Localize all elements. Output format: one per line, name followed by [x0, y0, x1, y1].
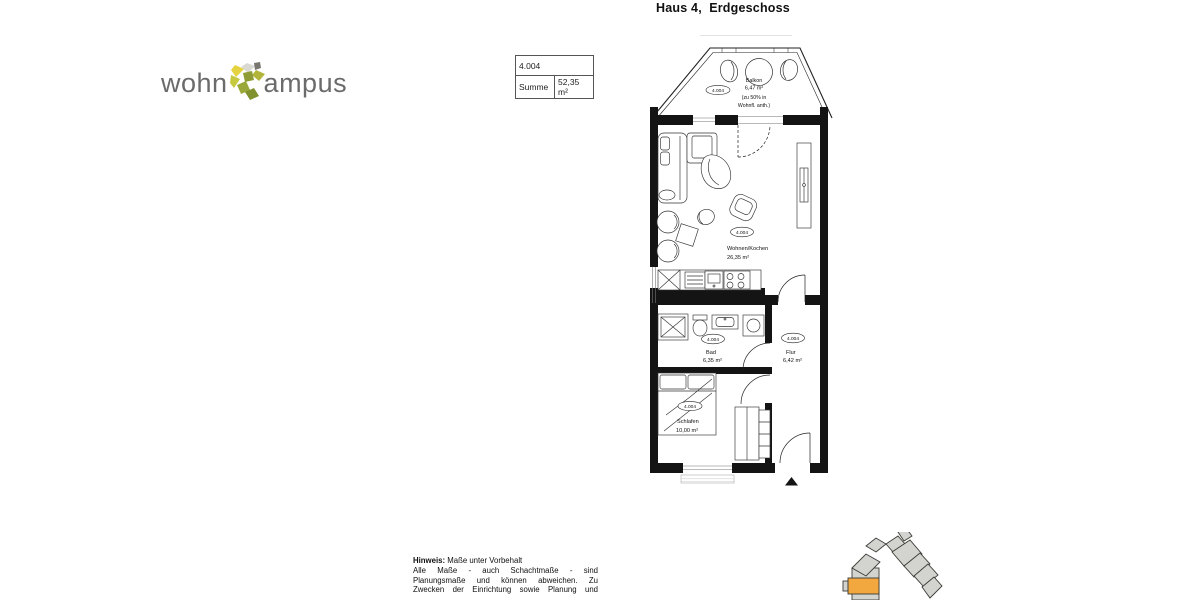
label-wohnen: 4.004 Wohnen/Kochen 26,35 m² [727, 227, 768, 261]
svg-text:Wohnen/Kochen: Wohnen/Kochen [727, 246, 768, 252]
svg-text:Wohnfl. anth.): Wohnfl. anth.) [738, 103, 770, 109]
label-balkon: 4.004 Balkon 6,47 m² (zu 50% in Wohnfl. … [706, 78, 770, 109]
logo-text-left: wohn [161, 70, 228, 97]
disclaimer-line: Planungsmaße und können abweichen. Zu [413, 576, 598, 586]
logo-pinwheel-icon [229, 62, 267, 100]
sum-value-cell: 52,35 m² [555, 76, 594, 99]
svg-text:Bad: Bad [706, 350, 716, 356]
floorplan-drawing: 4.004 Balkon 6,47 m² (zu 50% in Wohnfl. … [640, 40, 840, 500]
siteplan-highlighted-building [848, 578, 879, 594]
disclaimer-intro: Hinweis: Maße unter Vorbehalt [413, 556, 598, 566]
siteplan-buildings [843, 532, 942, 600]
logo: wohn ampus [161, 62, 347, 104]
unit-number-cell: 4.004 [516, 56, 594, 76]
svg-text:4.004: 4.004 [707, 337, 719, 343]
bath-door [743, 343, 770, 370]
svg-text:4.004: 4.004 [684, 404, 696, 410]
page-title: Haus 4, Erdgeschoss [656, 1, 790, 15]
unit-area-table: 4.004 Summe 52,35 m² [515, 55, 594, 99]
toilet [693, 315, 707, 320]
sum-label-cell: Summe [516, 76, 555, 99]
logo-text-right: ampus [264, 70, 348, 97]
svg-text:6,42 m²: 6,42 m² [783, 358, 802, 364]
svg-text:10,00 m²: 10,00 m² [676, 428, 698, 434]
entrance-arrow-icon [785, 477, 798, 486]
disclaimer: Hinweis: Maße unter Vorbehalt Alle Maße … [413, 556, 598, 595]
svg-text:Schlafen: Schlafen [677, 419, 699, 425]
bedroom-door [741, 375, 770, 404]
living-furniture [657, 133, 811, 290]
svg-text:6,35 m²: 6,35 m² [703, 358, 722, 364]
svg-text:6,47 m²: 6,47 m² [745, 86, 763, 92]
svg-text:Balkon: Balkon [746, 78, 762, 84]
disclaimer-line: Alle Maße - auch Schachtmaße - sind [413, 566, 598, 576]
svg-text:26,35 m²: 26,35 m² [727, 255, 749, 261]
svg-text:(zu 50% in: (zu 50% in [742, 95, 767, 101]
floorplan-sheet: { "page": { "title": "Haus 4, Erdgeschos… [0, 0, 1200, 600]
siteplan-building [843, 581, 848, 591]
title-underline [700, 35, 792, 36]
siteplan-building [866, 538, 886, 552]
svg-text:4.004: 4.004 [736, 230, 748, 236]
svg-text:Flur: Flur [786, 350, 796, 356]
label-flur: 4.004 Flur 6,42 m² [782, 333, 805, 364]
label-bad: 4.004 Bad 6,35 m² [702, 334, 725, 364]
svg-text:4.004: 4.004 [787, 336, 799, 342]
disclaimer-line: Zwecken der Einrichtung sowie Planung un… [413, 585, 598, 595]
svg-text:4.004: 4.004 [712, 88, 724, 94]
siteplan [836, 532, 962, 600]
bedroom-furniture [658, 373, 770, 460]
